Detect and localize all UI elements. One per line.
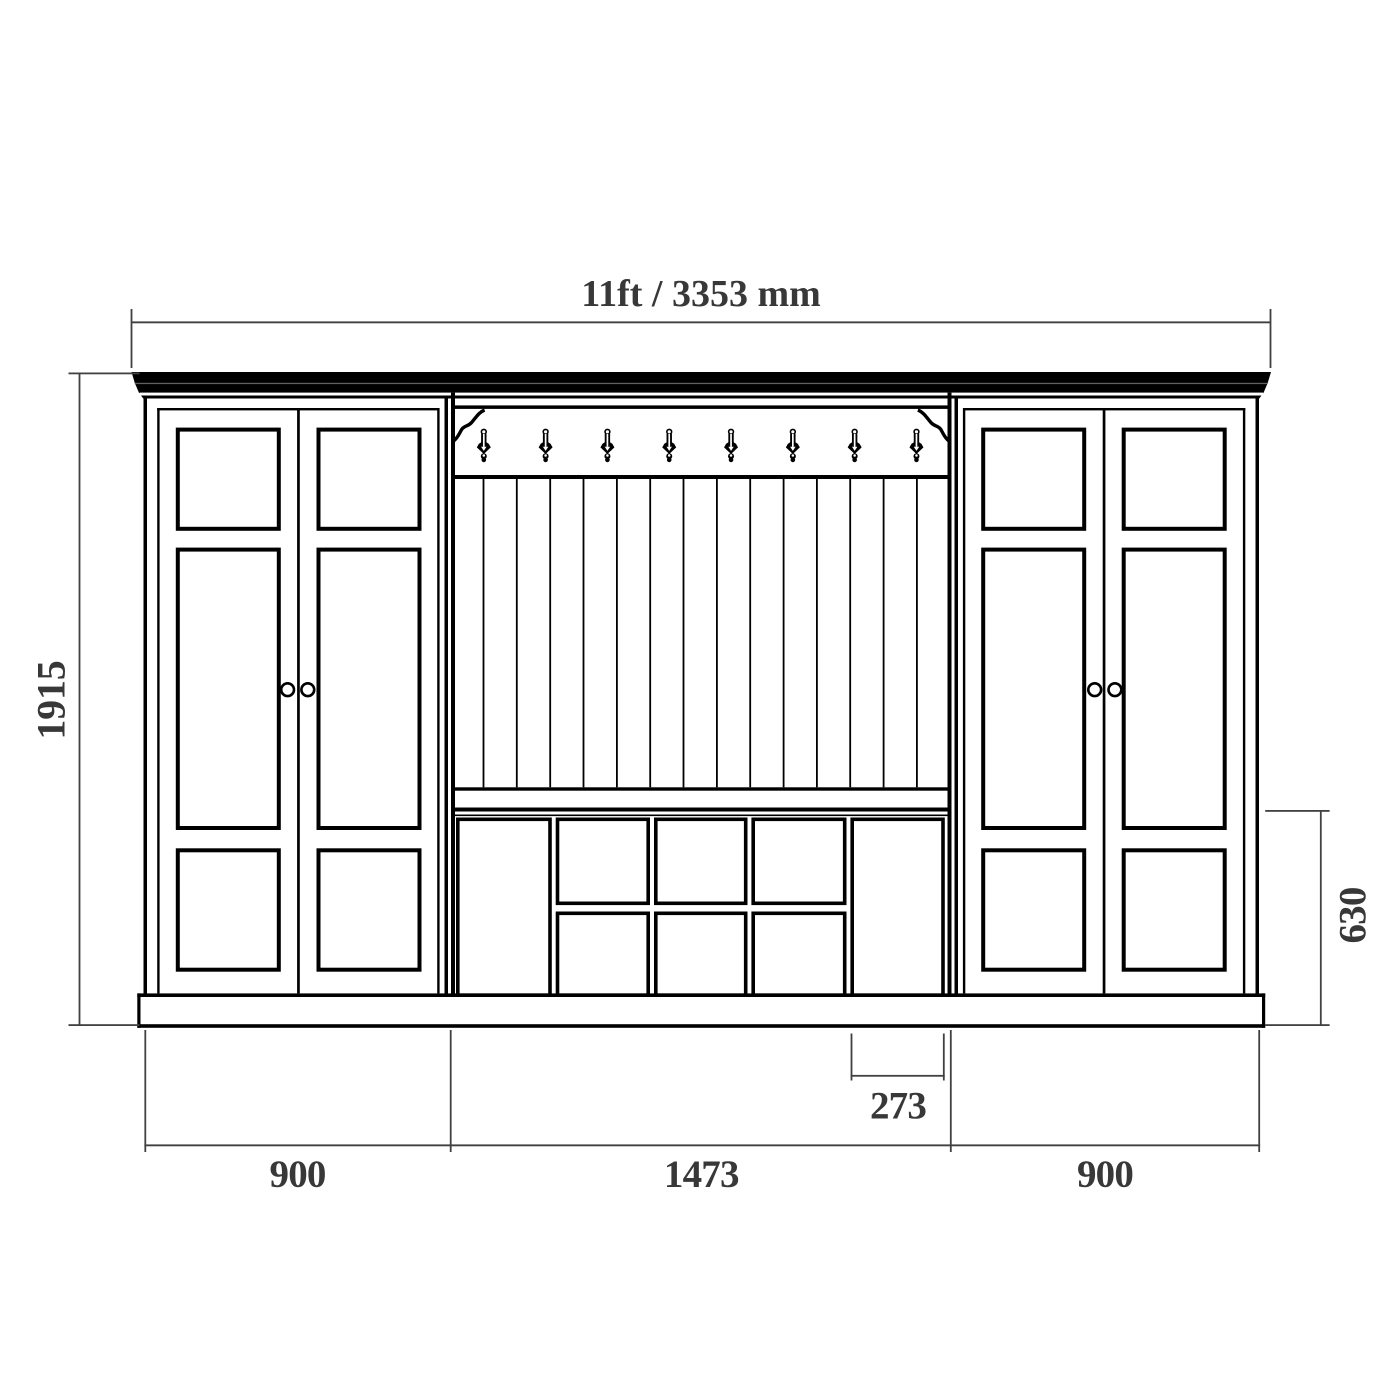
svg-text:273: 273: [870, 1085, 926, 1128]
svg-text:1473: 1473: [664, 1153, 739, 1196]
svg-text:900: 900: [1077, 1153, 1133, 1196]
svg-text:630: 630: [1332, 887, 1375, 943]
svg-text:1915: 1915: [29, 660, 74, 739]
svg-text:900: 900: [270, 1153, 326, 1196]
svg-text:11ft / 3353 mm: 11ft / 3353 mm: [581, 273, 821, 315]
